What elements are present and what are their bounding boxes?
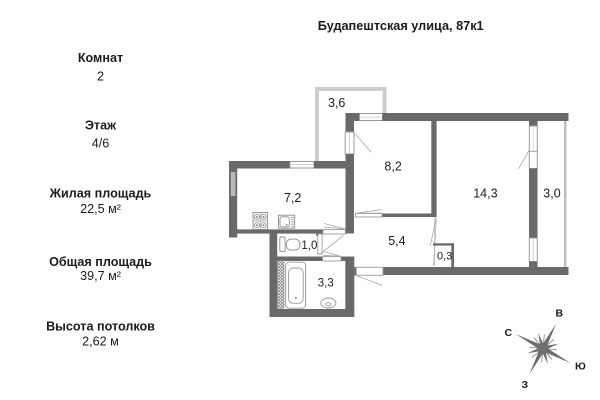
svg-text:8,2: 8,2 [384,160,401,174]
svg-text:4/6: 4/6 [92,136,110,150]
svg-text:З: З [522,379,529,391]
svg-text:Ю: Ю [575,361,586,373]
svg-text:Высота потолков: Высота потолков [46,320,155,334]
svg-text:1,0: 1,0 [301,240,317,252]
svg-text:7,2: 7,2 [284,191,301,205]
svg-text:Этаж: Этаж [85,119,117,133]
svg-text:5,4: 5,4 [388,234,405,248]
svg-text:2,62 м: 2,62 м [82,334,119,348]
svg-text:Будапештская улица, 87к1: Будапештская улица, 87к1 [318,19,484,33]
svg-text:3,3: 3,3 [318,278,334,290]
svg-text:3,6: 3,6 [328,96,345,110]
svg-text:В: В [556,308,564,320]
svg-text:2: 2 [97,69,104,83]
svg-text:3,0: 3,0 [543,187,560,201]
svg-text:39,7 м²: 39,7 м² [80,269,121,283]
svg-text:Жилая площадь: Жилая площадь [49,187,152,201]
svg-text:14,3: 14,3 [473,186,497,200]
svg-text:22,5 м²: 22,5 м² [80,202,121,216]
svg-text:Общая площадь: Общая площадь [49,255,152,269]
svg-text:С: С [505,327,513,339]
svg-text:Комнат: Комнат [78,51,123,65]
svg-text:0,3: 0,3 [437,251,452,263]
